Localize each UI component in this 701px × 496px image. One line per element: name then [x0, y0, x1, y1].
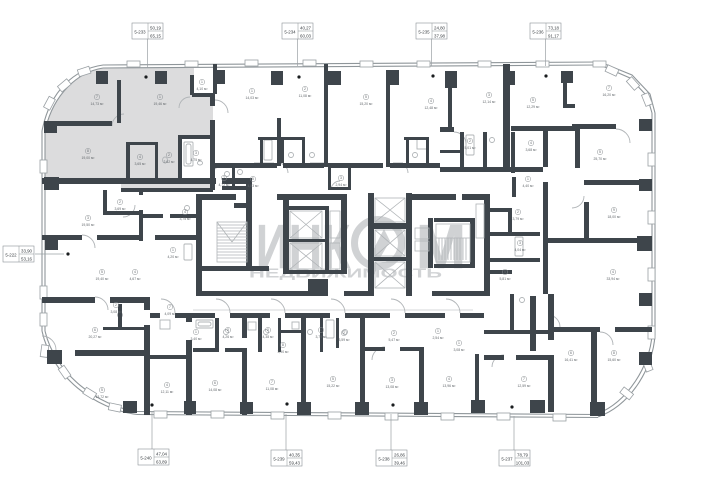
svg-text:5: 5 — [101, 388, 103, 392]
svg-text:13,72 м²: 13,72 м² — [96, 395, 110, 399]
svg-text:4: 4 — [166, 383, 168, 387]
svg-text:14,73 м²: 14,73 м² — [91, 102, 105, 106]
svg-text:78,79: 78,79 — [517, 453, 529, 458]
svg-text:5: 5 — [252, 177, 254, 181]
svg-text:5,47 м²: 5,47 м² — [388, 338, 400, 342]
svg-text:8: 8 — [87, 149, 89, 153]
svg-text:53,16: 53,16 — [21, 257, 33, 262]
svg-text:7: 7 — [271, 380, 273, 384]
svg-text:4,26 м²: 4,26 м² — [222, 335, 234, 339]
svg-text:4,20 м²: 4,20 м² — [167, 255, 179, 259]
svg-text:50,19: 50,19 — [150, 26, 162, 31]
svg-text:5: 5 — [365, 95, 367, 99]
svg-text:5-240: 5-240 — [140, 455, 152, 460]
svg-text:3,75 м²: 3,75 м² — [179, 217, 191, 221]
svg-text:11,08 м²: 11,08 м² — [266, 387, 280, 391]
svg-text:3,08 м²: 3,08 м² — [453, 348, 465, 352]
svg-text:65,15: 65,15 — [150, 34, 162, 39]
svg-text:3: 3 — [488, 93, 490, 97]
svg-text:7: 7 — [96, 95, 98, 99]
svg-text:13,96 м²: 13,96 м² — [443, 384, 457, 388]
svg-text:59,43: 59,43 — [289, 461, 301, 466]
svg-text:14,03 м²: 14,03 м² — [246, 96, 260, 100]
svg-text:3: 3 — [87, 216, 89, 220]
svg-text:25,70 м²: 25,70 м² — [594, 157, 608, 161]
svg-text:4: 4 — [530, 141, 532, 145]
svg-text:4: 4 — [448, 377, 450, 381]
svg-text:15,20 м²: 15,20 м² — [360, 102, 374, 106]
svg-text:5-222: 5-222 — [5, 252, 17, 257]
svg-text:2: 2 — [267, 328, 269, 332]
svg-text:40,27: 40,27 — [300, 26, 312, 31]
svg-text:8: 8 — [282, 343, 284, 347]
svg-text:2: 2 — [115, 303, 117, 307]
svg-text:3: 3 — [519, 241, 521, 245]
svg-text:3,69 м²: 3,69 м² — [114, 207, 126, 211]
svg-text:2: 2 — [119, 200, 121, 204]
svg-text:12,59 м²: 12,59 м² — [518, 384, 532, 388]
svg-text:16,41 м²: 16,41 м² — [565, 358, 579, 362]
svg-text:73,18: 73,18 — [548, 26, 560, 31]
svg-text:4,67 м²: 4,67 м² — [129, 277, 141, 281]
svg-text:3,65 м²: 3,65 м² — [134, 162, 146, 166]
svg-text:4,10 м²: 4,10 м² — [196, 87, 208, 91]
svg-text:60,03: 60,03 — [300, 34, 312, 39]
svg-text:63,89: 63,89 — [156, 460, 168, 465]
svg-text:1: 1 — [201, 80, 203, 84]
svg-text:3: 3 — [195, 151, 197, 155]
svg-text:4: 4 — [134, 270, 136, 274]
svg-text:5: 5 — [532, 98, 534, 102]
svg-text:24,80: 24,80 — [434, 26, 446, 31]
svg-text:1: 1 — [458, 341, 460, 345]
svg-text:3: 3 — [391, 378, 393, 382]
svg-text:15,60 м²: 15,60 м² — [608, 358, 622, 362]
svg-text:2,94 м²: 2,94 м² — [335, 183, 347, 187]
svg-text:2: 2 — [343, 331, 345, 335]
svg-text:7: 7 — [223, 176, 225, 180]
svg-text:5-235: 5-235 — [418, 29, 430, 34]
svg-text:12,14 м²: 12,14 м² — [483, 100, 497, 104]
svg-text:33,94 м²: 33,94 м² — [607, 277, 621, 281]
svg-text:2: 2 — [304, 87, 306, 91]
svg-text:5: 5 — [599, 150, 601, 154]
svg-text:5: 5 — [101, 270, 103, 274]
svg-text:4,72 м²: 4,72 м² — [218, 183, 230, 187]
svg-text:6: 6 — [214, 381, 216, 385]
svg-text:2: 2 — [227, 328, 229, 332]
svg-text:18,00 м²: 18,00 м² — [608, 215, 622, 219]
svg-text:19,50 м²: 19,50 м² — [82, 223, 96, 227]
svg-text:12,11 м²: 12,11 м² — [161, 390, 175, 394]
svg-text:7: 7 — [523, 377, 525, 381]
svg-text:1: 1 — [195, 330, 197, 334]
svg-text:16,20 м²: 16,20 м² — [603, 93, 617, 97]
svg-text:5-236: 5-236 — [532, 29, 544, 34]
svg-text:9: 9 — [613, 208, 615, 212]
svg-text:7: 7 — [169, 305, 171, 309]
svg-text:15,22 м²: 15,22 м² — [327, 384, 341, 388]
svg-text:4,09 м²: 4,09 м² — [164, 312, 176, 316]
svg-text:33,90: 33,90 — [21, 249, 33, 254]
svg-text:26,86: 26,86 — [394, 453, 406, 458]
svg-text:1: 1 — [437, 329, 439, 333]
svg-text:1: 1 — [159, 95, 161, 99]
svg-text:3,08 м²: 3,08 м² — [110, 310, 122, 314]
svg-text:5-234: 5-234 — [284, 29, 296, 34]
svg-text:11,08 м²: 11,08 м² — [299, 94, 313, 98]
svg-text:19,40 м²: 19,40 м² — [96, 277, 110, 281]
svg-text:4: 4 — [612, 270, 614, 274]
svg-text:14,08 м²: 14,08 м² — [209, 388, 223, 392]
svg-text:6: 6 — [94, 328, 96, 332]
svg-text:5,81 м²: 5,81 м² — [499, 277, 511, 281]
svg-text:3,90 м²: 3,90 м² — [277, 350, 289, 354]
svg-text:101,03: 101,03 — [516, 461, 530, 466]
svg-text:2,62 м²: 2,62 м² — [163, 160, 175, 164]
svg-text:1: 1 — [172, 248, 174, 252]
svg-text:5: 5 — [504, 270, 506, 274]
svg-text:4,40 м²: 4,40 м² — [522, 184, 534, 188]
svg-text:5,01 м²: 5,01 м² — [464, 146, 476, 150]
svg-text:4: 4 — [139, 155, 141, 159]
svg-text:5-237: 5-237 — [501, 456, 513, 461]
svg-text:4,04 м²: 4,04 м² — [514, 248, 526, 252]
svg-text:3,68 м²: 3,68 м² — [525, 148, 537, 152]
svg-text:12,29 м²: 12,29 м² — [527, 105, 541, 109]
svg-text:20,27 м²: 20,27 м² — [89, 335, 103, 339]
svg-text:6: 6 — [570, 351, 572, 355]
svg-text:4,75 м²: 4,75 м² — [190, 158, 202, 162]
svg-text:2,54 м²: 2,54 м² — [432, 336, 444, 340]
svg-text:5-233: 5-233 — [134, 29, 146, 34]
svg-text:19,46 м²: 19,46 м² — [154, 102, 168, 106]
svg-text:4,83 м²: 4,83 м² — [247, 184, 259, 188]
svg-text:91,17: 91,17 — [548, 34, 560, 39]
svg-text:3,79 м²: 3,79 м² — [315, 335, 327, 339]
svg-text:12,48 м²: 12,48 м² — [425, 106, 439, 110]
svg-text:3: 3 — [340, 176, 342, 180]
svg-text:3,79 м²: 3,79 м² — [512, 217, 524, 221]
svg-text:8: 8 — [613, 351, 615, 355]
svg-text:5-238: 5-238 — [378, 456, 390, 461]
svg-text:37,98: 37,98 — [434, 34, 446, 39]
svg-text:4: 4 — [430, 99, 432, 103]
svg-text:40,35: 40,35 — [289, 453, 301, 458]
svg-text:39,46: 39,46 — [394, 461, 406, 466]
svg-text:3,40 м²: 3,40 м² — [190, 337, 202, 341]
svg-text:4,38 м²: 4,38 м² — [262, 335, 274, 339]
svg-text:2: 2 — [393, 331, 395, 335]
svg-text:47,04: 47,04 — [156, 452, 168, 457]
svg-text:19,00 м²: 19,00 м² — [82, 156, 96, 160]
svg-text:7: 7 — [608, 86, 610, 90]
svg-text:1: 1 — [320, 328, 322, 332]
svg-text:1: 1 — [527, 177, 529, 181]
svg-text:1: 1 — [251, 89, 253, 93]
svg-text:5-239: 5-239 — [273, 456, 285, 461]
svg-text:2: 2 — [469, 139, 471, 143]
svg-text:5: 5 — [332, 377, 334, 381]
svg-text:4: 4 — [184, 210, 186, 214]
svg-text:13,08 м²: 13,08 м² — [386, 385, 400, 389]
svg-text:2: 2 — [517, 210, 519, 214]
svg-text:2: 2 — [168, 153, 170, 157]
svg-text:3,59 м²: 3,59 м² — [338, 338, 350, 342]
